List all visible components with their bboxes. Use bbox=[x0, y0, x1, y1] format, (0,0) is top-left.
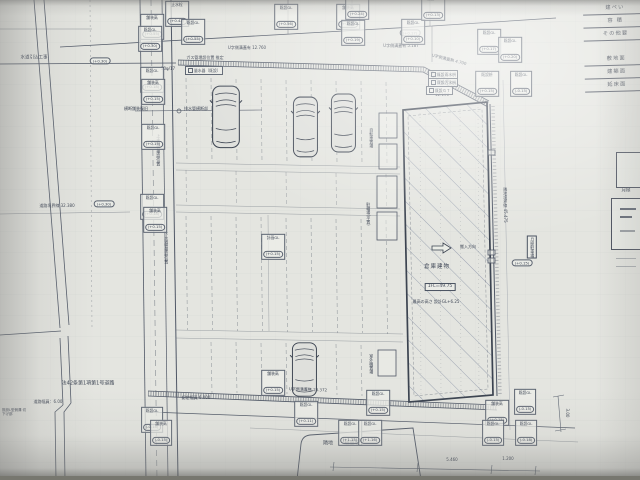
site-plan-photo: 建ぺい 容 積 その他要 敷地面 建築面 延床面 月極 搬入方向 倉庫建物 1F… bbox=[0, 0, 640, 480]
east-parking-label: 月極駐車場 bbox=[527, 236, 537, 259]
certified-width: 認定幅員 6.000 bbox=[182, 396, 211, 400]
spot-label: 既設GL(+0.24) bbox=[345, 0, 369, 20]
spot-label: 既設GL(-0.15) bbox=[482, 420, 504, 446]
water-intake-label: 水道引込工事 bbox=[21, 57, 48, 62]
road-name: 法42条第1項第1号道路 bbox=[62, 381, 115, 387]
stamp-mark bbox=[620, 230, 635, 232]
spot-label: 舗装高(+0.15) bbox=[261, 370, 285, 396]
row-label: 容 積 bbox=[607, 17, 623, 24]
stamp-mark bbox=[620, 216, 632, 218]
parking-stall-lines bbox=[176, 78, 403, 396]
site-plan-drawing: 建ぺい 容 積 その他要 敷地面 建築面 延床面 月極 搬入方向 倉庫建物 1F… bbox=[0, 0, 640, 480]
spot-label: 既設GL(+0.15) bbox=[366, 390, 390, 416]
manhole-icon bbox=[431, 72, 436, 77]
spot-label: 舗装高(+0.15) bbox=[143, 207, 167, 233]
spot-label: 既設GL(-0.15) bbox=[510, 71, 532, 97]
spot-label: 既設GL(+0.11) bbox=[294, 401, 318, 427]
water-meter-label: 量水器〔既設〕 bbox=[185, 66, 223, 75]
pipe-lower-label: 下水道管埋設位置 bbox=[164, 232, 168, 264]
bike-area-label-2: 駐輪場(平置) bbox=[366, 202, 370, 225]
arrow-label: 搬入方向 bbox=[460, 245, 476, 249]
manhole-icon bbox=[431, 80, 436, 85]
row-label: 敷地面 bbox=[607, 55, 626, 62]
spot-label: 既設GL(+0.10) bbox=[401, 19, 425, 45]
road-width: 道路幅員：6.00 bbox=[34, 400, 63, 404]
elevation-oval: (+0.15) bbox=[512, 259, 533, 266]
gas-line-label: ガス管埋設位置 推定 bbox=[186, 56, 223, 60]
equipment-label: 室外機置場 bbox=[369, 354, 373, 374]
l-gutter-lines bbox=[55, 336, 71, 480]
elevation-oval: (+0.30) bbox=[90, 57, 111, 64]
height-note: 最高の高さ 設計GL+6.25 bbox=[413, 300, 460, 304]
utility-box: 既設ＧＴ bbox=[426, 86, 453, 95]
spot-label: 舗装高(-0.15) bbox=[150, 420, 172, 446]
elevation-oval: (+0.30) bbox=[94, 200, 115, 207]
spot-label: 既設GL(+0.20) bbox=[498, 37, 522, 63]
spot-label: 既設GL(+0.55) bbox=[181, 19, 205, 45]
spot-label: 既設GL(+0.19) bbox=[341, 20, 365, 46]
spot-label: 舗装高(+0.15) bbox=[141, 79, 165, 105]
bike-area-label: 自転車置場 bbox=[369, 128, 373, 148]
car-icon bbox=[329, 94, 358, 152]
spot-label: 既設枡(+0.15) bbox=[475, 71, 499, 97]
row-label: その他要 bbox=[603, 29, 629, 37]
plan-linework bbox=[0, 0, 640, 480]
east-boundary-label: 隣地境界線 45.475 bbox=[503, 187, 507, 222]
row-label: 建ぺい bbox=[605, 4, 624, 11]
dim-label: 5.460 bbox=[446, 458, 457, 462]
spot-label: 既設GL(+0.13) bbox=[421, 0, 445, 21]
side-note: 月極 bbox=[622, 190, 631, 195]
dim-label: 3.00 bbox=[565, 409, 569, 418]
meter-icon bbox=[188, 68, 193, 73]
edge-box-large bbox=[611, 198, 640, 250]
manhole-icon bbox=[429, 88, 434, 93]
row-label: 延床面 bbox=[607, 81, 626, 88]
note-line bbox=[616, 266, 636, 267]
spot-label: 既設GL(-0.15) bbox=[514, 389, 536, 415]
dim-label: 1.200 bbox=[502, 457, 513, 461]
building-footprint bbox=[403, 102, 493, 402]
edge-box-small bbox=[616, 152, 640, 188]
note-line bbox=[616, 258, 636, 259]
gutter-top-label: U字側溝蓋有 12.760 bbox=[228, 46, 266, 50]
car-icon bbox=[210, 86, 242, 147]
spot-label: 既設GL(-0.18) bbox=[515, 420, 537, 446]
table-row: 延床面 bbox=[575, 79, 640, 94]
west-road-lines bbox=[0, 0, 92, 335]
spot-label: 既設GL(+0.15) bbox=[141, 124, 165, 150]
table-row: その他要 bbox=[574, 28, 640, 43]
stamp-mark bbox=[620, 208, 636, 210]
l-gutter-label: 既設L型側溝 切下げ部 bbox=[2, 408, 28, 416]
spot-label: 計画GL(+0.15) bbox=[261, 234, 285, 260]
photo-edge bbox=[0, 476, 640, 480]
spot-label: 既設GL(+0.30) bbox=[138, 26, 162, 52]
car-icon bbox=[291, 97, 320, 157]
spot-label: 既設GL(+1.16) bbox=[358, 420, 382, 446]
crossing-repair-label: 横断舗装復旧 bbox=[124, 107, 148, 111]
building-name: 倉庫建物 bbox=[424, 264, 450, 270]
spot-label: 既設GL(+0.56) bbox=[274, 4, 298, 30]
floor-level-label: 1FL=49.75 bbox=[425, 283, 456, 291]
neighbor-label: 隣地 bbox=[323, 441, 333, 447]
area-summary-table: 建ぺい 容 積 その他要 敷地面 建築面 延床面 bbox=[573, 2, 640, 94]
crossing-label: 排水管横断部 bbox=[184, 107, 208, 111]
row-label: 建築面 bbox=[607, 68, 626, 75]
road-boundary-length: 道路境界線 32.380 bbox=[39, 204, 74, 208]
